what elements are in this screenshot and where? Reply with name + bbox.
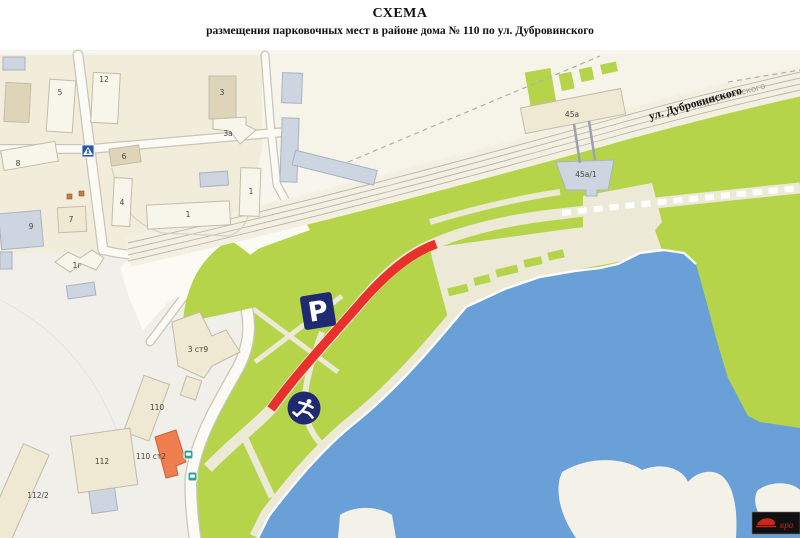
building-label: 45а/1	[575, 170, 597, 179]
building	[0, 210, 43, 250]
pedestrian-crossing-icon	[82, 145, 94, 157]
building-label: 3	[220, 88, 225, 97]
building	[281, 73, 302, 104]
building-label: 110 ст2	[136, 452, 166, 461]
building	[200, 171, 229, 187]
building	[0, 252, 12, 269]
building-label: 8	[16, 159, 21, 168]
green-patch	[579, 67, 594, 82]
parking-sign-icon: P	[300, 292, 337, 331]
building-label: 112	[95, 457, 110, 466]
building-label: 45а	[565, 110, 579, 119]
building-label: 3 ст9	[188, 345, 209, 354]
building	[4, 82, 31, 122]
building	[3, 57, 25, 70]
kiosk-icon	[79, 191, 84, 196]
bus-stop-icon	[188, 472, 197, 481]
building-label: 1	[249, 187, 254, 196]
building-label: 3а	[223, 129, 232, 138]
runner-icon	[288, 392, 321, 425]
watermark-logo: кра	[752, 512, 800, 534]
building-label: 5	[58, 88, 63, 97]
building-label: 9	[29, 222, 34, 231]
building-label: 110	[150, 403, 165, 412]
watermark-text: кра	[780, 520, 794, 530]
building-label: 4	[120, 198, 125, 207]
sandbar	[558, 460, 736, 538]
map-image: 51233а68411791г3 ст9110110 ст2112112/245…	[0, 0, 800, 538]
building-label: 112/2	[27, 491, 49, 500]
building-label: 12	[99, 75, 109, 84]
bus-stop-icon	[184, 450, 193, 459]
building-label: 7	[69, 215, 74, 224]
scheme-page: СХЕМА размещения парковочных мест в райо…	[0, 0, 800, 538]
building-label: 1	[186, 210, 191, 219]
building-3	[209, 76, 236, 119]
kiosk-icon	[67, 194, 72, 199]
building-label: 1г	[73, 261, 82, 270]
building-label: 6	[122, 152, 127, 161]
